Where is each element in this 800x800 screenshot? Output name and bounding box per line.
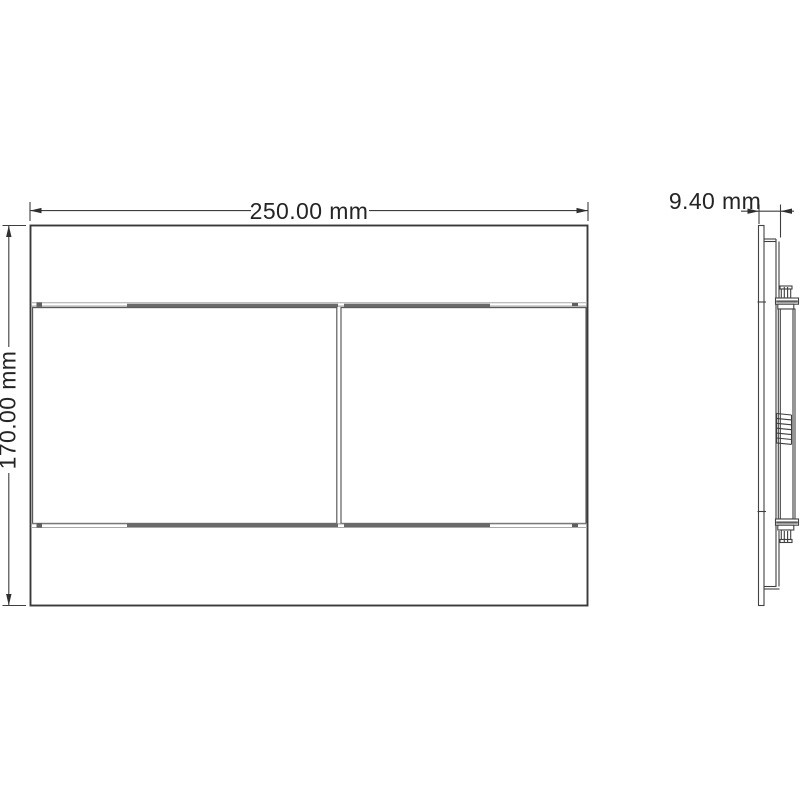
- technical-drawing-svg: 250.00 mm 170.00 mm 9.40 mm: [0, 0, 800, 800]
- bottom-screw-body: [781, 530, 790, 540]
- top-screw-body: [781, 289, 790, 298]
- side-view: [758, 226, 799, 606]
- depth-arrowhead-back: [781, 209, 793, 214]
- height-dimension-label: 170.00 mm: [0, 351, 21, 470]
- bottom-screw-cap: [780, 540, 792, 543]
- right-flush-button: [341, 308, 586, 524]
- top-seam-right-notch: [572, 303, 578, 306]
- side-plate-profile: [759, 226, 765, 606]
- bottom-seam-right-notch: [572, 524, 578, 527]
- width-dimension-label: 250.00 mm: [250, 198, 369, 224]
- top-seam-left-notch: [37, 302, 43, 307]
- depth-dimension-label: 9.40 mm: [669, 188, 761, 214]
- depth-dimension: 9.40 mm: [669, 188, 794, 238]
- top-flange-shadow: [776, 300, 798, 302]
- top-flange-step: [778, 304, 794, 309]
- front-view: [31, 226, 588, 606]
- height-dimension: 170.00 mm: [0, 226, 26, 606]
- width-dimension: 250.00 mm: [30, 198, 588, 224]
- drawing-sheet: 250.00 mm 170.00 mm 9.40 mm: [0, 0, 800, 800]
- width-arrowhead-left: [30, 208, 42, 213]
- height-arrowhead-top: [6, 226, 11, 238]
- width-arrowhead-right: [577, 208, 589, 213]
- left-flush-button: [33, 308, 337, 524]
- bottom-flange-step: [778, 525, 794, 530]
- bottom-seam-left-notch: [37, 523, 43, 528]
- height-arrowhead-bottom: [6, 594, 11, 606]
- bottom-flange-shadow: [776, 521, 798, 523]
